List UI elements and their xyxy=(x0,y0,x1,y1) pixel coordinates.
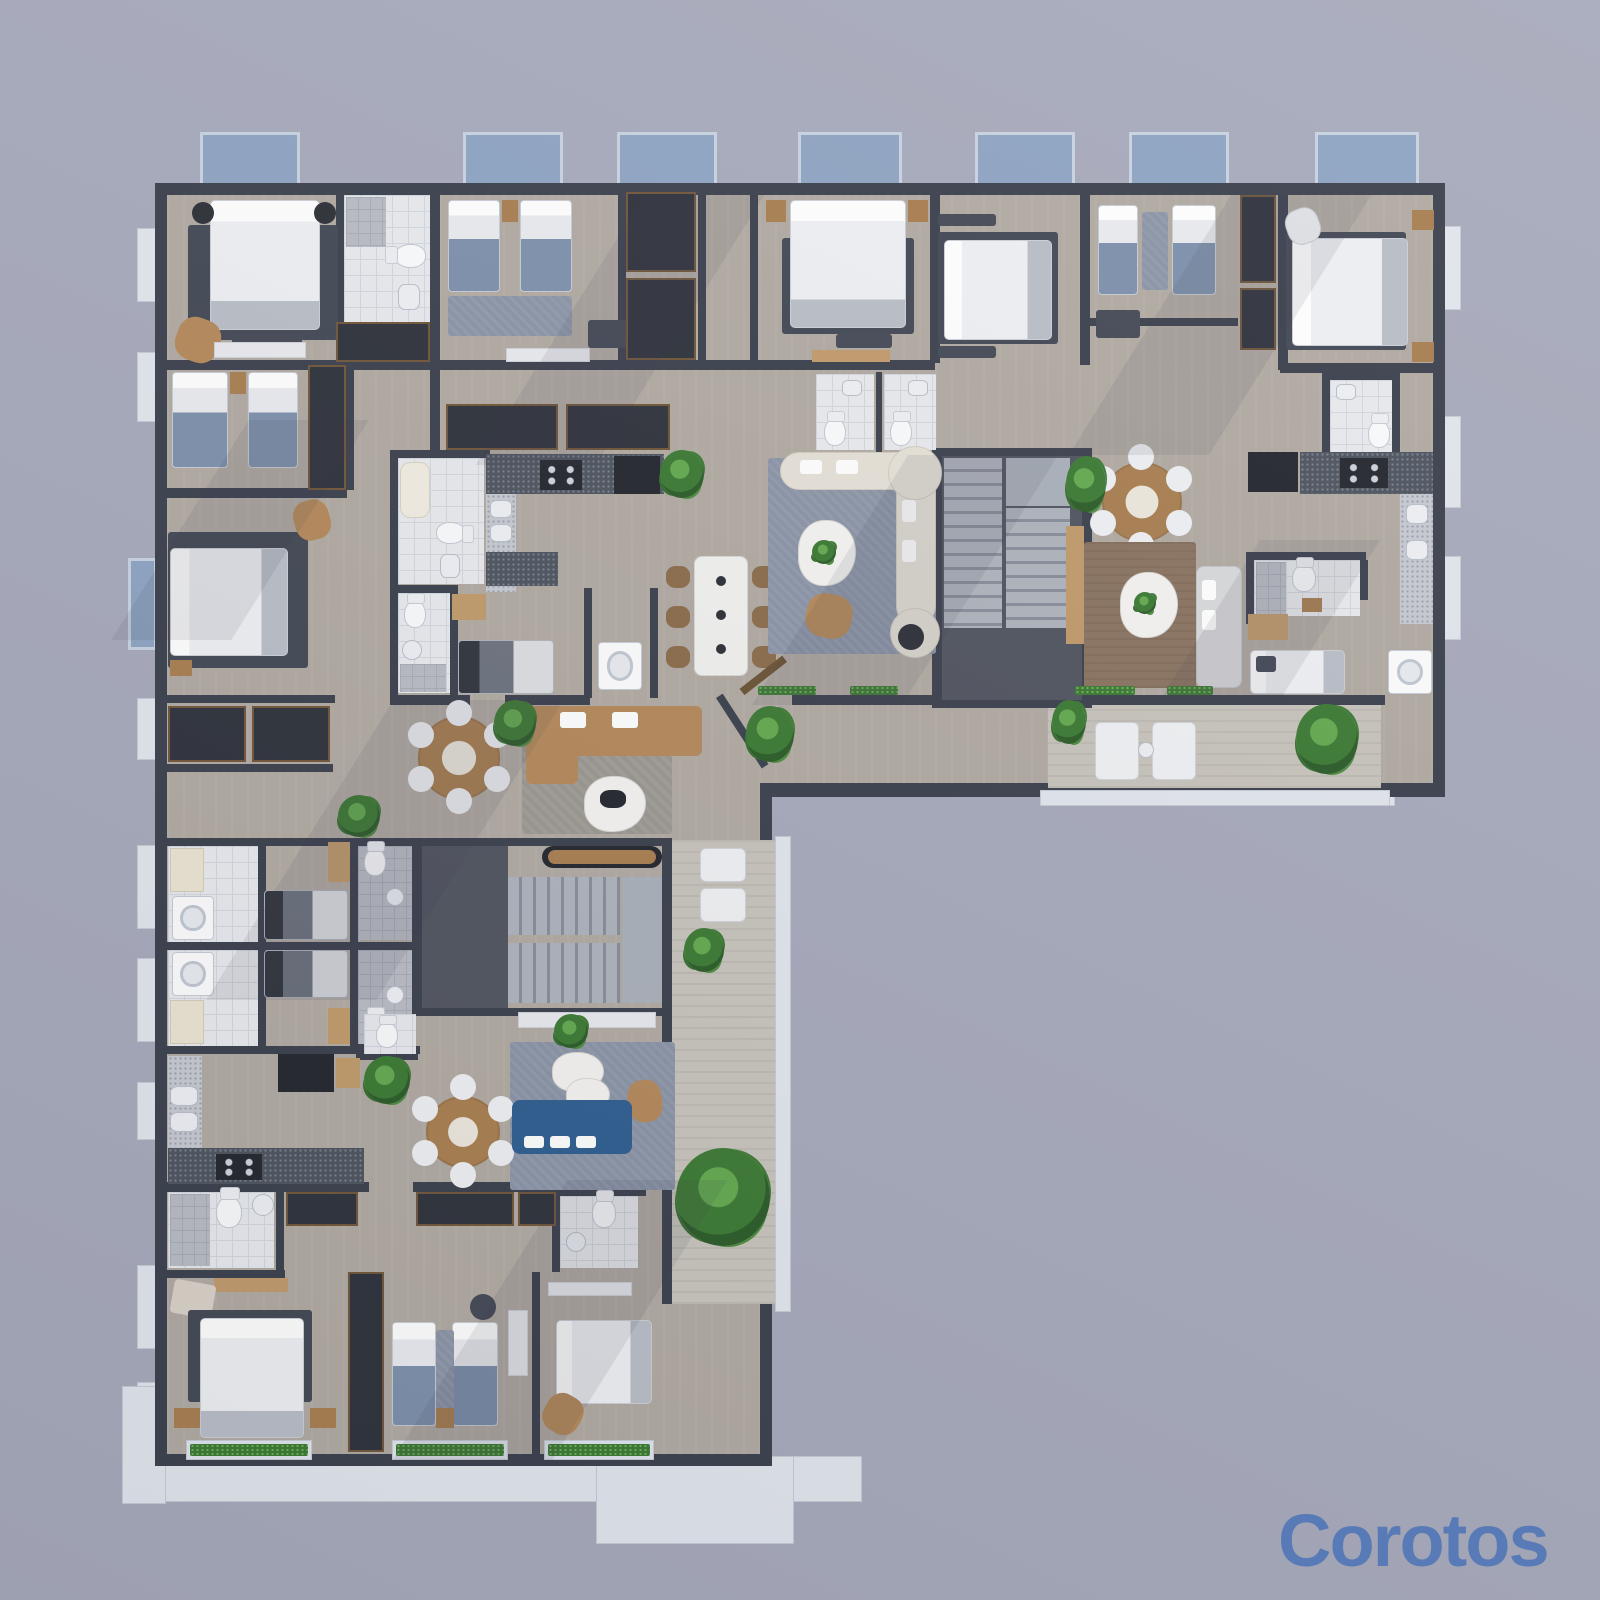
window xyxy=(137,1265,157,1349)
chaise-lounge xyxy=(1152,722,1196,780)
stairs xyxy=(944,458,1002,628)
window xyxy=(137,845,157,929)
modular-sofa xyxy=(526,738,578,784)
cushion xyxy=(524,1136,544,1148)
potted-plant xyxy=(554,1014,588,1048)
potted-plant xyxy=(1066,456,1106,512)
stair-landing xyxy=(1006,458,1070,506)
bed-bench xyxy=(836,334,892,348)
lounge-chair xyxy=(588,320,630,348)
double-bed xyxy=(1292,238,1408,346)
floor-lamp xyxy=(898,624,924,650)
wall-segment xyxy=(430,185,440,463)
window xyxy=(137,352,157,422)
window xyxy=(1443,556,1461,640)
desk xyxy=(214,342,306,358)
cushion xyxy=(836,460,858,474)
dresser xyxy=(812,350,890,362)
console-top xyxy=(548,850,656,864)
sink xyxy=(170,1086,198,1106)
balcony xyxy=(128,558,157,650)
tv-console xyxy=(1248,452,1298,492)
wardrobe xyxy=(1240,288,1276,350)
potted-plant xyxy=(746,706,794,762)
stairs xyxy=(508,877,620,935)
bed-bench xyxy=(938,346,996,358)
potted-plant xyxy=(676,1148,770,1246)
nightstand xyxy=(766,200,786,222)
toilet xyxy=(1292,564,1316,592)
nightstand xyxy=(310,1408,336,1428)
twin-bed xyxy=(248,372,298,468)
bed-bench xyxy=(938,214,996,226)
toilet xyxy=(592,1198,616,1228)
sink xyxy=(842,380,862,396)
window-planter xyxy=(548,1444,650,1456)
window-planter xyxy=(190,1444,308,1456)
potted-plant xyxy=(364,1056,410,1104)
sink xyxy=(386,888,404,906)
wall-segment xyxy=(584,588,592,698)
balcony xyxy=(1315,132,1419,188)
console-table xyxy=(1066,526,1084,644)
sink xyxy=(908,380,928,396)
sink xyxy=(566,1232,586,1252)
wall-segment xyxy=(532,1272,540,1456)
twin-bed xyxy=(452,1322,498,1426)
window-planter xyxy=(1167,686,1213,695)
wardrobe xyxy=(252,706,330,762)
wall-segment xyxy=(698,185,706,363)
pendant-lights xyxy=(716,576,726,586)
sink xyxy=(170,1112,198,1132)
kitchen-counter xyxy=(168,1148,364,1184)
cushion xyxy=(902,500,916,522)
window-planter xyxy=(850,686,898,695)
sectional-sofa xyxy=(888,446,942,500)
shower xyxy=(1256,562,1286,614)
potted-plant xyxy=(1296,704,1358,774)
desk xyxy=(328,1008,350,1044)
wardrobe xyxy=(168,706,246,762)
wall-segment xyxy=(390,455,398,697)
wall-segment xyxy=(276,1188,284,1274)
window xyxy=(1443,226,1461,310)
twin-bed xyxy=(172,372,228,468)
window xyxy=(1443,416,1461,508)
sink xyxy=(386,986,404,1004)
wall-segment xyxy=(1392,372,1400,454)
nightstand xyxy=(230,372,246,394)
shelf-unit xyxy=(170,1000,204,1044)
wall-segment xyxy=(412,838,668,846)
stove xyxy=(540,460,582,490)
shower xyxy=(170,1194,210,1266)
window-planter xyxy=(758,686,816,695)
marble-dining-table xyxy=(694,556,748,676)
balcony xyxy=(975,132,1075,188)
sink xyxy=(490,500,512,518)
toilet xyxy=(216,1196,242,1228)
toilet xyxy=(890,418,912,446)
daybed xyxy=(556,1320,652,1404)
stair-hall-floor xyxy=(422,846,508,1008)
balcony xyxy=(617,132,717,188)
area-rug xyxy=(436,1330,454,1420)
bathtub xyxy=(400,462,430,518)
toilet xyxy=(1368,420,1390,448)
toilet xyxy=(404,600,426,628)
toilet xyxy=(376,1022,398,1048)
wardrobe xyxy=(626,278,696,360)
office-chair xyxy=(470,1294,496,1320)
sink xyxy=(398,284,420,310)
cushion xyxy=(576,1136,596,1148)
toilet xyxy=(436,522,466,544)
area-rug xyxy=(1142,212,1168,290)
wall-segment xyxy=(1322,372,1330,454)
nightstand xyxy=(436,1408,454,1428)
wardrobe xyxy=(566,404,670,450)
dining-chair xyxy=(666,646,690,668)
chaise-lounge xyxy=(1095,722,1139,780)
potted-plant xyxy=(1134,592,1156,614)
bedside-lamp xyxy=(192,202,214,224)
vanity xyxy=(214,1278,288,1292)
toilet xyxy=(394,244,426,268)
stairs xyxy=(1006,508,1070,628)
kitchen-island xyxy=(486,552,558,586)
watermark: Corotos xyxy=(1278,1498,1598,1588)
potted-plant xyxy=(660,450,704,498)
nightstand xyxy=(1412,342,1434,362)
wall-segment xyxy=(412,838,422,1010)
wall-segment xyxy=(155,695,335,703)
potted-plant xyxy=(684,928,724,972)
wall-segment xyxy=(1040,695,1385,705)
shower xyxy=(346,197,386,247)
wall-segment xyxy=(155,764,333,772)
terrace xyxy=(596,1456,794,1544)
terrace-chair xyxy=(700,848,746,882)
dining-chairs xyxy=(1134,494,1148,508)
nightstand xyxy=(502,200,518,222)
double-bed xyxy=(170,548,288,656)
wall-segment xyxy=(392,585,458,593)
twin-bed xyxy=(1098,205,1138,295)
washing-machine xyxy=(598,642,642,690)
window xyxy=(137,698,157,760)
potted-plant xyxy=(494,700,536,746)
cushion xyxy=(902,540,916,562)
nightstand xyxy=(1412,210,1434,230)
wall-segment xyxy=(390,695,470,705)
wall-segment xyxy=(932,448,1092,456)
nightstand xyxy=(170,660,192,676)
washing-machine xyxy=(172,952,214,996)
wardrobe xyxy=(336,322,430,362)
twin-bed xyxy=(1172,205,1216,295)
wall-segment xyxy=(876,372,882,452)
wall-segment xyxy=(155,1270,285,1278)
railing xyxy=(775,836,791,1312)
wall-segment xyxy=(1360,560,1368,600)
desk xyxy=(508,1310,528,1376)
cushion xyxy=(1256,656,1276,672)
stove xyxy=(1340,458,1388,488)
cushion xyxy=(800,460,822,474)
desk xyxy=(328,842,350,882)
wardrobe xyxy=(308,365,346,490)
wardrobe xyxy=(1240,195,1276,283)
shower xyxy=(400,664,446,692)
twin-bed xyxy=(392,1322,436,1426)
sink xyxy=(1406,540,1428,560)
toilet xyxy=(824,418,846,446)
balcony xyxy=(1129,132,1229,188)
sink xyxy=(252,1194,274,1216)
stairs xyxy=(508,943,620,1003)
wall-segment xyxy=(1322,372,1400,380)
cabinet xyxy=(336,1058,360,1088)
wardrobe xyxy=(416,1192,514,1226)
refrigerator xyxy=(614,456,660,494)
sink xyxy=(490,524,512,542)
sink xyxy=(440,554,460,578)
double-bed xyxy=(200,1318,304,1438)
wall-segment xyxy=(662,838,672,1012)
wardrobe xyxy=(626,192,696,272)
shelf-unit xyxy=(170,848,204,892)
side-table xyxy=(1302,598,1322,612)
toilet xyxy=(364,848,386,876)
twin-bed xyxy=(520,200,572,292)
wall-segment xyxy=(750,185,758,363)
nightstand xyxy=(908,200,928,222)
sink xyxy=(402,640,422,660)
balcony xyxy=(200,132,300,188)
dining-chairs xyxy=(456,1124,470,1138)
double-bed xyxy=(790,200,906,328)
dining-chairs xyxy=(452,750,466,764)
wardrobe xyxy=(348,1272,384,1452)
side-table xyxy=(1138,742,1154,758)
tray xyxy=(600,790,626,808)
dining-chair xyxy=(666,606,690,628)
wall-segment xyxy=(1080,185,1090,365)
nightstand xyxy=(174,1408,200,1428)
washing-machine xyxy=(172,896,214,940)
wall-segment xyxy=(155,942,420,950)
twin-bed xyxy=(448,200,500,292)
desk xyxy=(506,348,590,362)
cushion xyxy=(1202,610,1216,630)
lounge-chair xyxy=(1096,310,1140,338)
window-planter xyxy=(396,1444,504,1456)
double-bed xyxy=(944,240,1052,340)
stove xyxy=(216,1154,262,1180)
kitchen-island xyxy=(278,1054,334,1092)
desk xyxy=(1248,614,1288,640)
wall-segment xyxy=(346,365,354,490)
wardrobe xyxy=(446,404,558,450)
terrace-chair xyxy=(700,888,746,922)
window xyxy=(137,1082,157,1140)
railing xyxy=(1040,790,1390,806)
stair-landing xyxy=(622,877,662,1003)
double-bed xyxy=(210,200,320,330)
window xyxy=(137,958,157,1042)
wall-segment xyxy=(650,588,658,698)
potted-plant xyxy=(1052,700,1086,744)
window xyxy=(137,228,157,302)
floor-plan-render: Corotos xyxy=(0,0,1600,1600)
potted-plant xyxy=(812,540,836,564)
single-bed xyxy=(458,640,554,694)
window-planter xyxy=(1075,686,1135,695)
cushion xyxy=(1202,580,1216,600)
sink xyxy=(1336,384,1356,400)
cushion xyxy=(560,712,586,728)
balcony xyxy=(463,132,563,188)
sink xyxy=(1406,504,1428,524)
desk xyxy=(548,1282,632,1296)
dresser xyxy=(452,594,486,620)
wall-segment xyxy=(390,450,490,458)
cushion xyxy=(612,712,638,728)
balcony xyxy=(798,132,902,188)
cushion xyxy=(550,1136,570,1148)
bedside-lamp xyxy=(314,202,336,224)
wardrobe xyxy=(518,1192,556,1226)
wardrobe xyxy=(286,1192,358,1226)
washing-machine xyxy=(1388,650,1432,694)
potted-plant xyxy=(338,795,380,837)
dining-chair xyxy=(666,566,690,588)
single-bed xyxy=(264,890,348,940)
area-rug xyxy=(448,296,572,336)
single-bed xyxy=(264,950,348,998)
wall-segment xyxy=(792,695,940,705)
